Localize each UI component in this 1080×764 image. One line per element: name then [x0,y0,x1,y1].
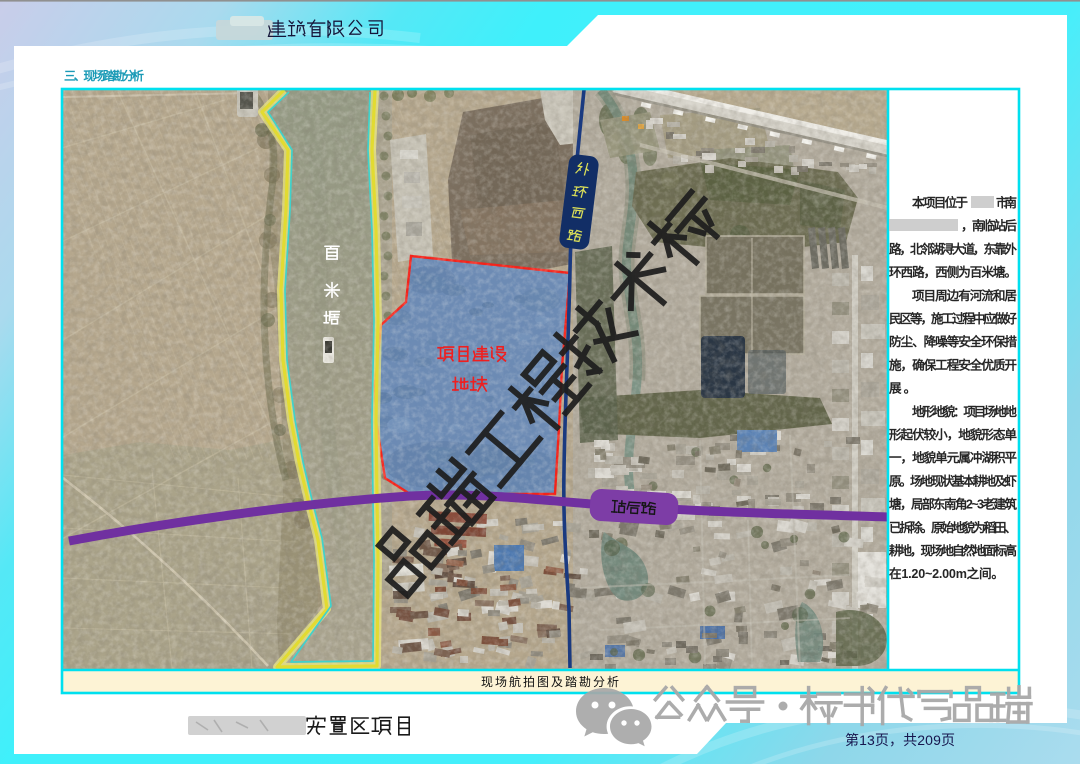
svg-text:在1.20~2.00m之间。: 在1.20~2.00m之间。 [889,566,1004,581]
svg-text:民区等，施工过程中应做好: 民区等，施工过程中应做好 [889,311,1017,326]
svg-text:形起伏较小，地貌形态单: 形起伏较小，地貌形态单 [889,427,1017,442]
svg-text:环西路，西侧为百米塘。: 环西路，西侧为百米塘。 [889,265,1017,280]
svg-text:防尘、降噪等安全环保措: 防尘、降噪等安全环保措 [889,334,1017,349]
svg-text:项目周边有河流和居: 项目周边有河流和居 [912,288,1017,303]
svg-text:三、现场踏勘分析: 三、现场踏勘分析 [64,68,144,83]
svg-text:耕地，现场地自然地面标高: 耕地，现场地自然地面标高 [889,543,1017,558]
svg-text:一，地貌单元属冲湖积平: 一，地貌单元属冲湖积平 [889,450,1017,465]
svg-text:路，北邻湖浔大道，东靠外: 路，北邻湖浔大道，东靠外 [889,241,1017,256]
svg-text:地形地貌：项目场地地: 地形地貌：项目场地地 [912,404,1017,419]
svg-text:，南临站后: ，南临站后 [961,218,1017,233]
svg-text:塘，局部东南角2~3老建筑: 塘，局部东南角2~3老建筑 [889,497,1017,512]
svg-text:已拆除。原始地貌为稻田、: 已拆除。原始地貌为稻田、 [889,520,1017,535]
svg-text:施，确保工程安全优质开: 施，确保工程安全优质开 [889,357,1017,372]
svg-text:现场航拍图及踏勘分析: 现场航拍图及踏勘分析 [481,674,619,689]
svg-text:市南: 市南 [996,195,1017,210]
svg-text:展。: 展。 [889,382,918,396]
svg-text:原。场地现状基本耕地及虾: 原。场地现状基本耕地及虾 [889,473,1017,488]
svg-text:本项目位于: 本项目位于 [912,195,968,210]
svg-text:第13页，共209页: 第13页，共209页 [845,732,955,748]
